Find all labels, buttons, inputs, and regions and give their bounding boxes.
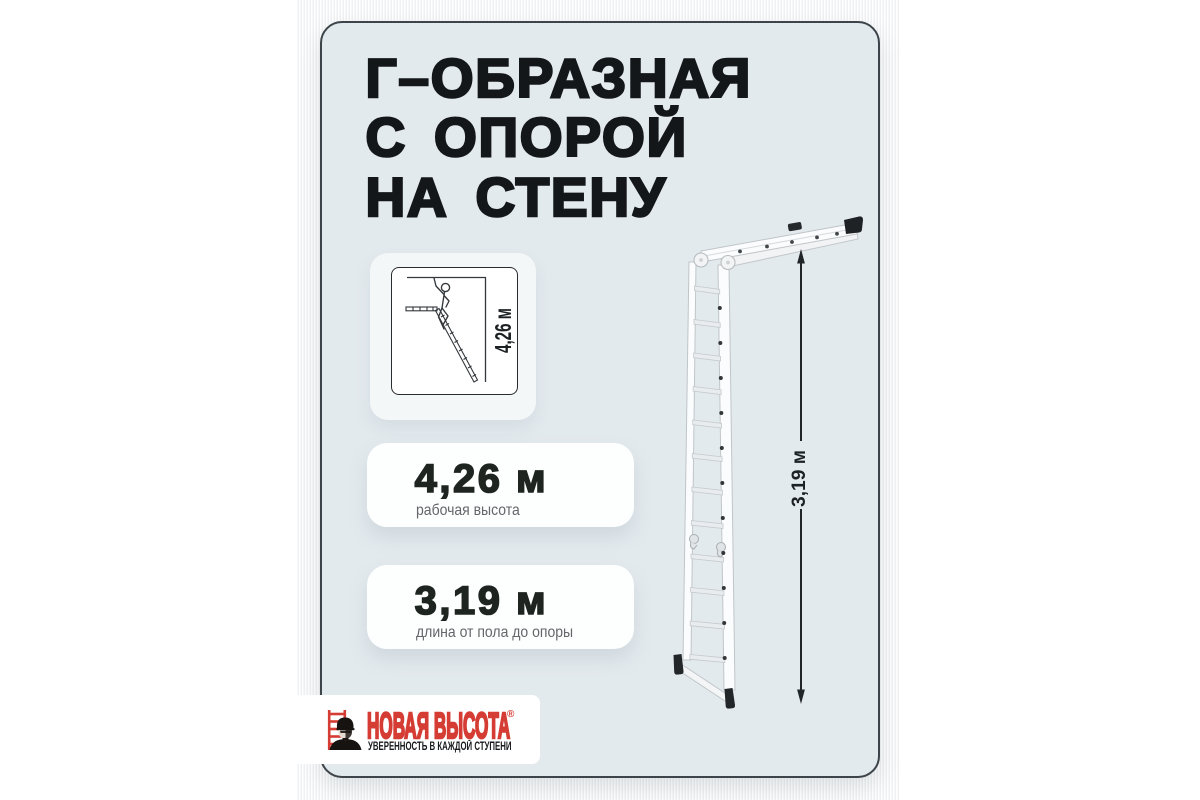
- svg-text:4,26 м: 4,26 м: [490, 308, 516, 353]
- svg-text:3,19 м: 3,19 м: [789, 450, 810, 507]
